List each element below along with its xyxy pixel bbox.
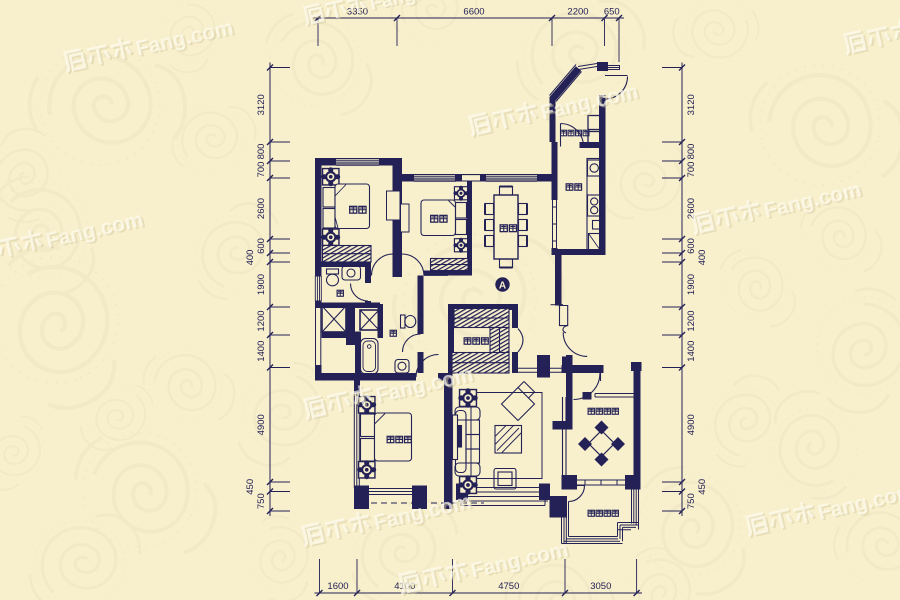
svg-text:650: 650 [604, 7, 620, 18]
svg-text:3120: 3120 [686, 94, 697, 115]
svg-text:4900: 4900 [256, 414, 267, 435]
svg-text:800: 800 [256, 144, 267, 160]
svg-text:A: A [499, 280, 506, 291]
svg-text:1900: 1900 [256, 274, 267, 295]
svg-text:700: 700 [256, 162, 267, 178]
svg-text:1400: 1400 [686, 341, 697, 362]
svg-text:400: 400 [697, 250, 708, 266]
svg-text:1400: 1400 [256, 341, 267, 362]
svg-text:600: 600 [686, 238, 697, 254]
svg-text:750: 750 [256, 493, 267, 509]
svg-text:2600: 2600 [256, 198, 267, 219]
svg-text:4750: 4750 [498, 581, 519, 592]
svg-text:4900: 4900 [686, 414, 697, 435]
svg-text:700: 700 [686, 162, 697, 178]
svg-text:800: 800 [686, 144, 697, 160]
svg-text:2200: 2200 [567, 7, 588, 18]
svg-text:1200: 1200 [686, 310, 697, 331]
svg-text:6600: 6600 [463, 7, 484, 18]
svg-text:450: 450 [245, 479, 256, 495]
svg-text:3050: 3050 [590, 581, 611, 592]
svg-text:3120: 3120 [256, 94, 267, 115]
svg-text:1900: 1900 [686, 274, 697, 295]
svg-text:750: 750 [686, 493, 697, 509]
svg-text:1600: 1600 [327, 581, 348, 592]
svg-text:400: 400 [245, 250, 256, 266]
svg-text:1200: 1200 [256, 310, 267, 331]
svg-text:450: 450 [697, 479, 708, 495]
svg-text:600: 600 [256, 238, 267, 254]
